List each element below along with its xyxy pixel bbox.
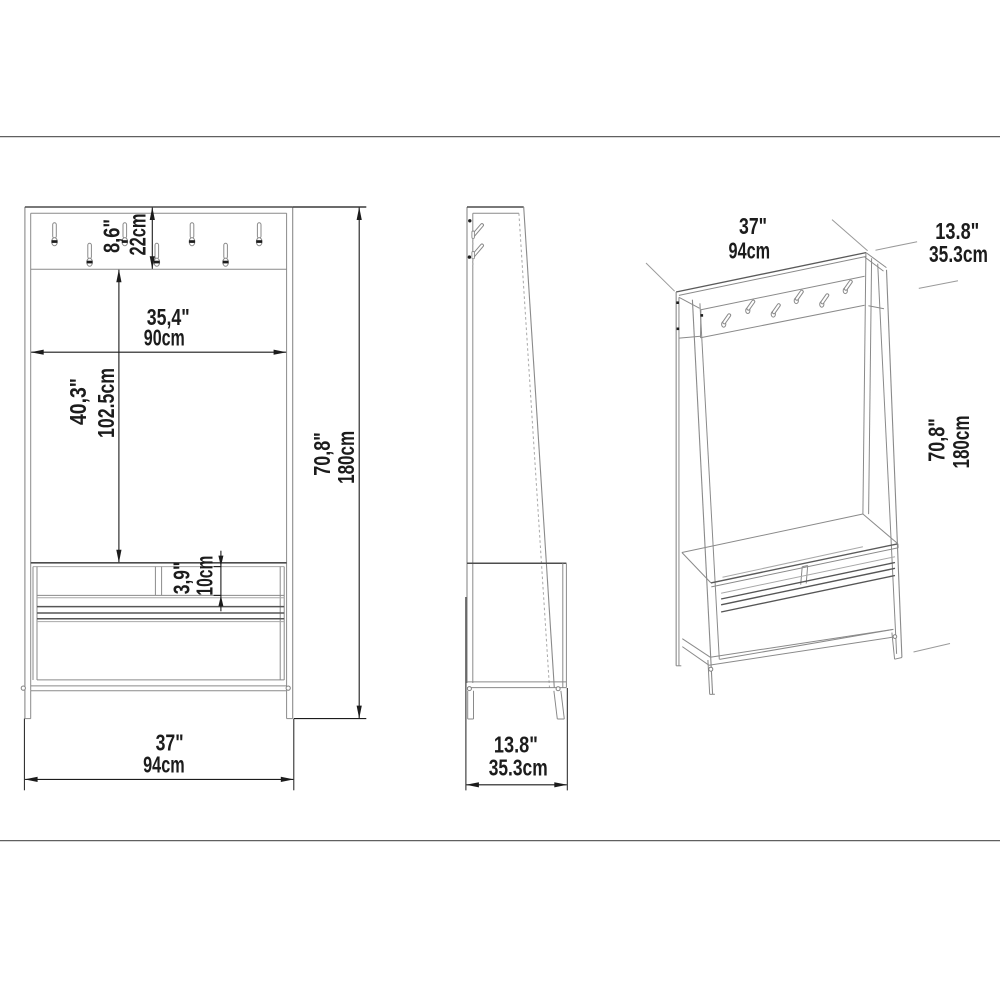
svg-text:90cm: 90cm <box>144 324 185 350</box>
svg-text:35.3cm: 35.3cm <box>489 755 548 781</box>
svg-text:94cm: 94cm <box>143 751 185 777</box>
svg-text:180cm: 180cm <box>333 431 359 484</box>
svg-text:35.3cm: 35.3cm <box>929 241 988 267</box>
svg-text:102.5cm: 102.5cm <box>93 368 119 438</box>
svg-text:94cm: 94cm <box>729 238 771 264</box>
svg-text:8,6": 8,6" <box>98 219 124 253</box>
svg-text:37": 37" <box>739 213 767 239</box>
svg-text:10cm: 10cm <box>192 556 218 596</box>
svg-text:180cm: 180cm <box>948 416 974 469</box>
svg-text:22cm: 22cm <box>125 214 151 256</box>
svg-text:70,8": 70,8" <box>309 432 335 476</box>
svg-text:70,8": 70,8" <box>923 418 949 462</box>
svg-text:40,3": 40,3" <box>65 378 91 425</box>
svg-text:3,9": 3,9" <box>168 562 194 595</box>
